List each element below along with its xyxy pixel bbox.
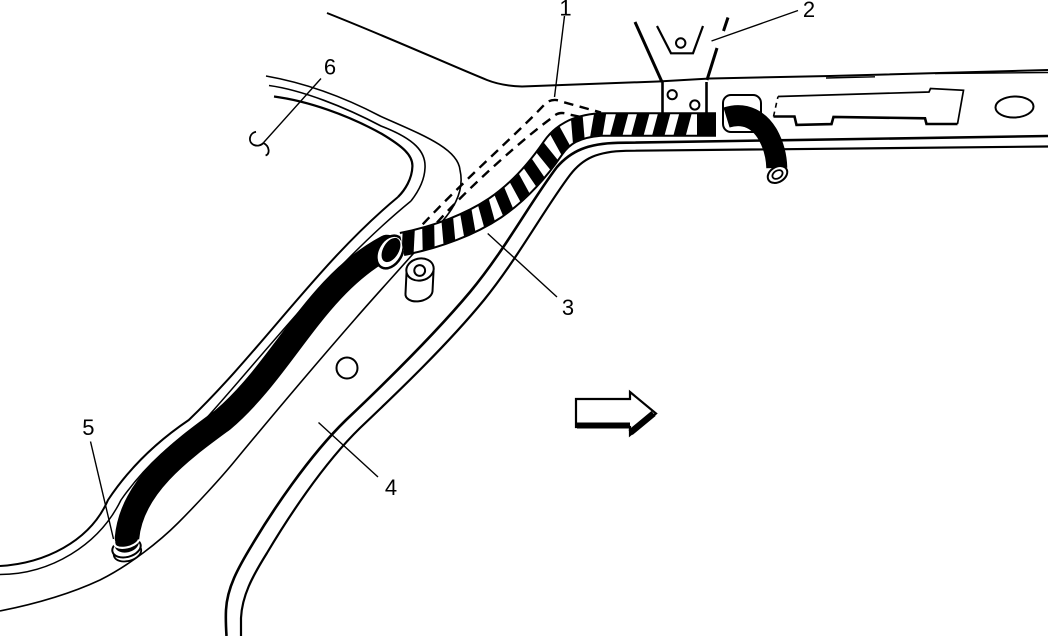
svg-text:4: 4 xyxy=(385,475,397,500)
svg-text:2: 2 xyxy=(803,0,815,22)
svg-text:5: 5 xyxy=(82,415,94,440)
svg-text:6: 6 xyxy=(324,55,336,80)
svg-text:1: 1 xyxy=(559,0,571,21)
svg-text:3: 3 xyxy=(562,295,574,320)
